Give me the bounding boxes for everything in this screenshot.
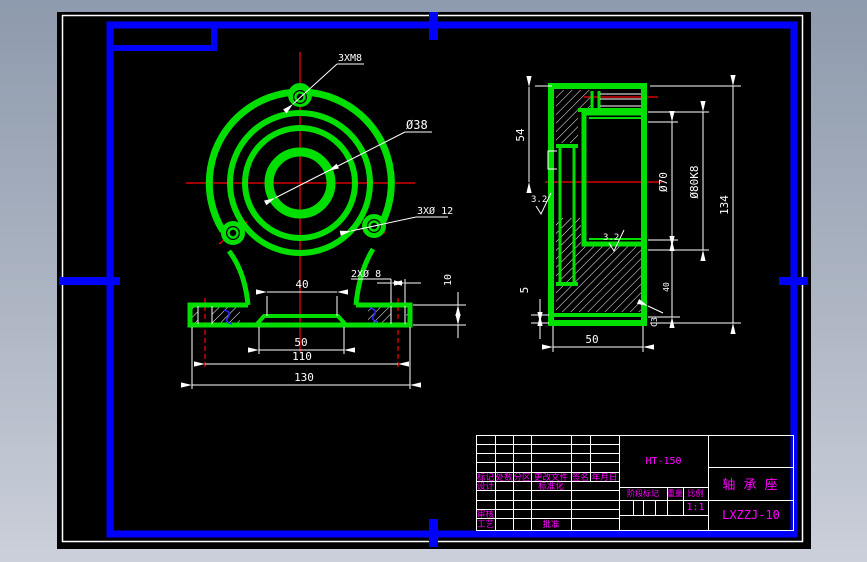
tb-label-scale: 比例 (683, 487, 708, 500)
base-hole-note: 2XØ 8 (351, 268, 381, 280)
dim-5-label: 5 (518, 287, 531, 294)
side-hatch (556, 90, 644, 312)
left-fillet (229, 251, 248, 305)
dim-50-label: 50 (294, 336, 307, 349)
tb-label-audit: 审核 (476, 509, 495, 518)
title-block: 标记 处数 分区 更改文件 签名 年月日 设计 标准化 审核 工艺 批准 HT-… (476, 435, 794, 531)
bore-dia-label: Ø38 (406, 118, 428, 132)
dim-54-label: 54 (514, 128, 527, 142)
centering-mark-bottom (429, 519, 438, 547)
dim-110-label: 110 (292, 350, 312, 363)
tb-label-process: 工艺 (476, 519, 495, 529)
roughness-2: 3.2 (603, 233, 619, 243)
side-view: 54 5 50 Ø70 Ø80K8 134 40 C3 3.2 3.2 (514, 86, 741, 352)
centering-mark-right (779, 277, 808, 285)
bore-section (584, 113, 644, 244)
tb-material: HT-150 (619, 435, 708, 487)
thread-note: 3XM8 (338, 53, 362, 64)
dia-70-label: Ø70 (657, 172, 670, 192)
tb-label-standard: 标准化 (531, 481, 571, 490)
cad-viewport: 40 50 110 130 10 2XØ 8 3XM8 Ø38 3XØ 12 (0, 0, 867, 562)
frame-corner-box (111, 28, 214, 48)
chamfer-label: C3 (650, 317, 659, 327)
dia-80k8-label: Ø80K8 (688, 165, 701, 198)
tb-label-qty: 处数 (495, 472, 513, 481)
dim-134-label: 134 (718, 195, 731, 215)
front-view: 40 50 110 130 10 2XØ 8 3XM8 Ø38 3XØ 12 (186, 52, 466, 389)
tb-label-sign: 签名 (571, 472, 590, 481)
dim-40s-label: 40 (662, 282, 671, 292)
tb-label-approve: 批准 (531, 519, 571, 529)
tb-label-zone: 分区 (513, 472, 531, 481)
tb-label-date: 年月日 (590, 472, 619, 481)
tb-label-design: 设计 (476, 481, 495, 490)
tb-label-weight: 重量 (667, 487, 683, 500)
tb-label-stage: 阶段标记 (619, 487, 667, 500)
roughness-1: 3.2 (531, 195, 547, 205)
dim-10-label: 10 (443, 274, 454, 286)
tb-part-name: 轴 承 座 (708, 467, 794, 500)
tb-drawing-no: LXZZJ-10 (708, 500, 794, 530)
dim-50s-label: 50 (585, 333, 598, 346)
dim-130-label: 130 (294, 371, 314, 384)
tb-scale-value: 1:1 (683, 500, 708, 515)
centering-mark-left (59, 277, 120, 285)
dim-40-label: 40 (295, 278, 308, 291)
hole-note: 3XØ 12 (417, 205, 453, 217)
centering-mark-top (429, 12, 438, 40)
